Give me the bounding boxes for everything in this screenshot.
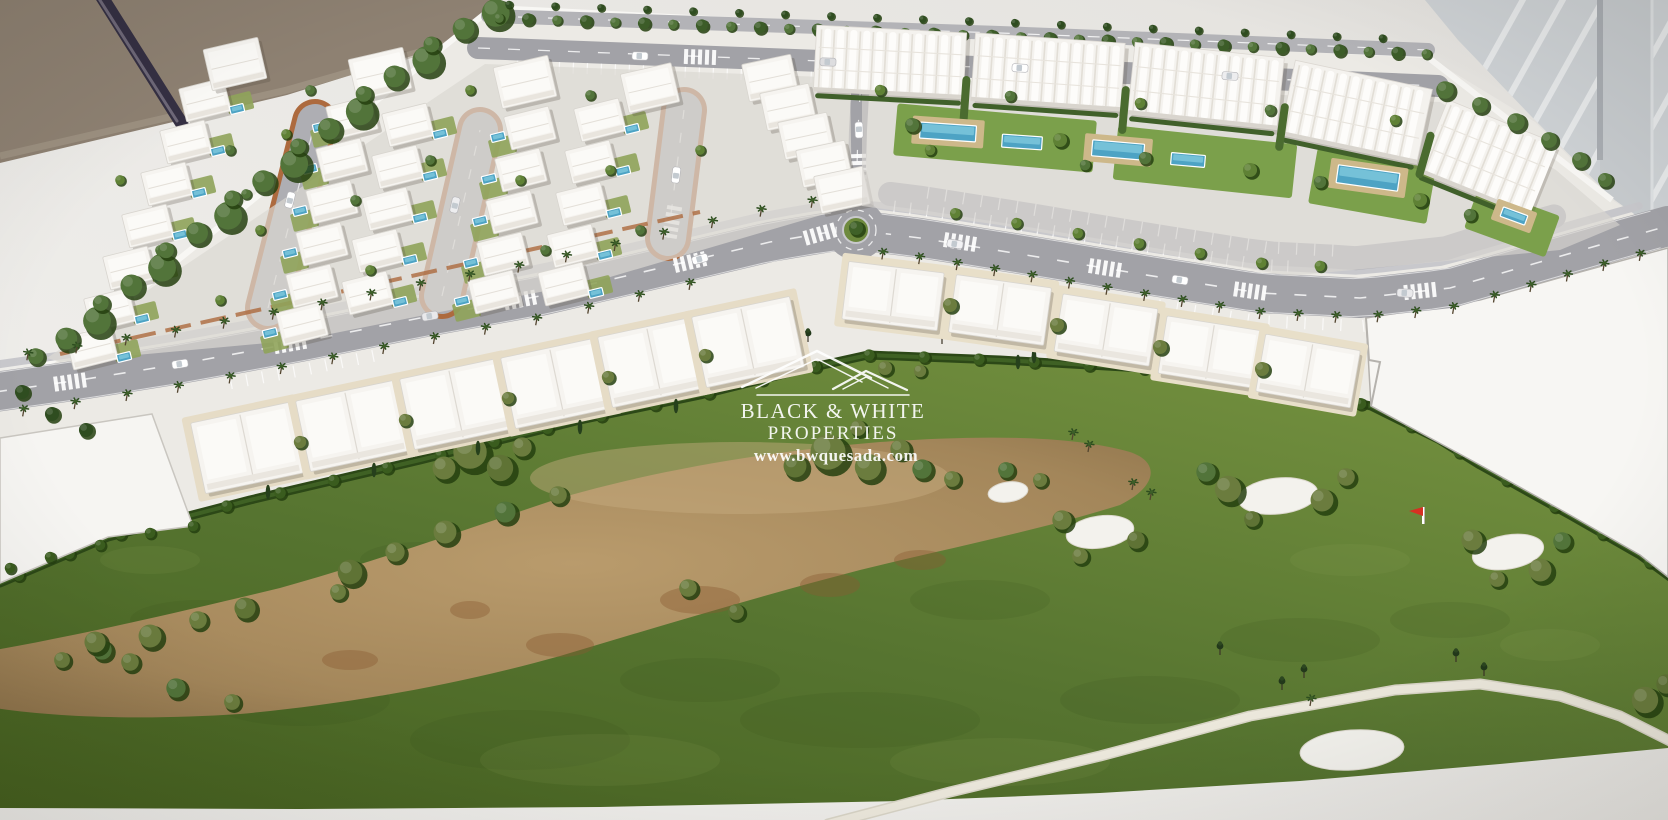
- watermark-brand-line2: PROPERTIES: [768, 423, 899, 444]
- scale-model-photo-canvas: BLACK & WHITE PROPERTIES www.bwquesada.c…: [0, 0, 1668, 820]
- watermark-brand-line1: BLACK & WHITE: [741, 399, 926, 423]
- watermark-website: www.bwquesada.com: [754, 446, 918, 465]
- scale-model-photo: BLACK & WHITE PROPERTIES www.bwquesada.c…: [0, 0, 1668, 820]
